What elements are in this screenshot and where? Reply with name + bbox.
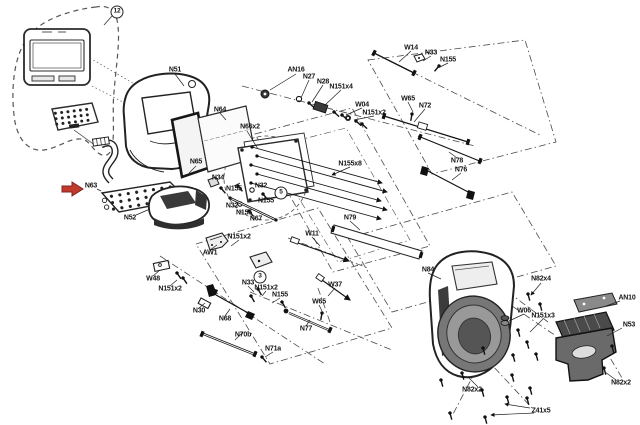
rod-w37 xyxy=(316,274,350,300)
rod-n78 xyxy=(417,134,482,165)
screw-w65-top xyxy=(409,112,414,121)
screws-n82x4 xyxy=(525,292,545,311)
tv-monitor xyxy=(24,29,90,85)
bracket-n33-top xyxy=(414,54,441,73)
diagram-art xyxy=(0,0,640,425)
screws-n151x3 xyxy=(515,328,541,361)
exploded-parts-diagram: 12N51N64N66x2N65N63N52N34N155N325N155N32… xyxy=(0,0,640,425)
rod-n76 xyxy=(420,166,475,200)
display-panel-n66 xyxy=(238,133,314,202)
mounting-plane-lines xyxy=(160,40,622,416)
rod-n77 xyxy=(284,309,333,334)
bracket-n53 xyxy=(556,312,616,381)
ribbon-cable xyxy=(93,137,116,181)
rod-n68 xyxy=(206,284,255,320)
rod-n70b xyxy=(199,331,257,358)
rod-n72 xyxy=(382,113,471,146)
plate-an10 xyxy=(574,293,617,312)
rod-w14 xyxy=(371,50,417,77)
part-w48 xyxy=(153,260,189,283)
screw-w65-bottom xyxy=(319,311,324,320)
rod-w11 xyxy=(290,237,349,261)
enclosure-keypad xyxy=(52,103,98,146)
red-arrow-icon xyxy=(62,182,83,196)
bracket-n34 xyxy=(208,177,227,193)
housing-n52 xyxy=(149,186,209,229)
